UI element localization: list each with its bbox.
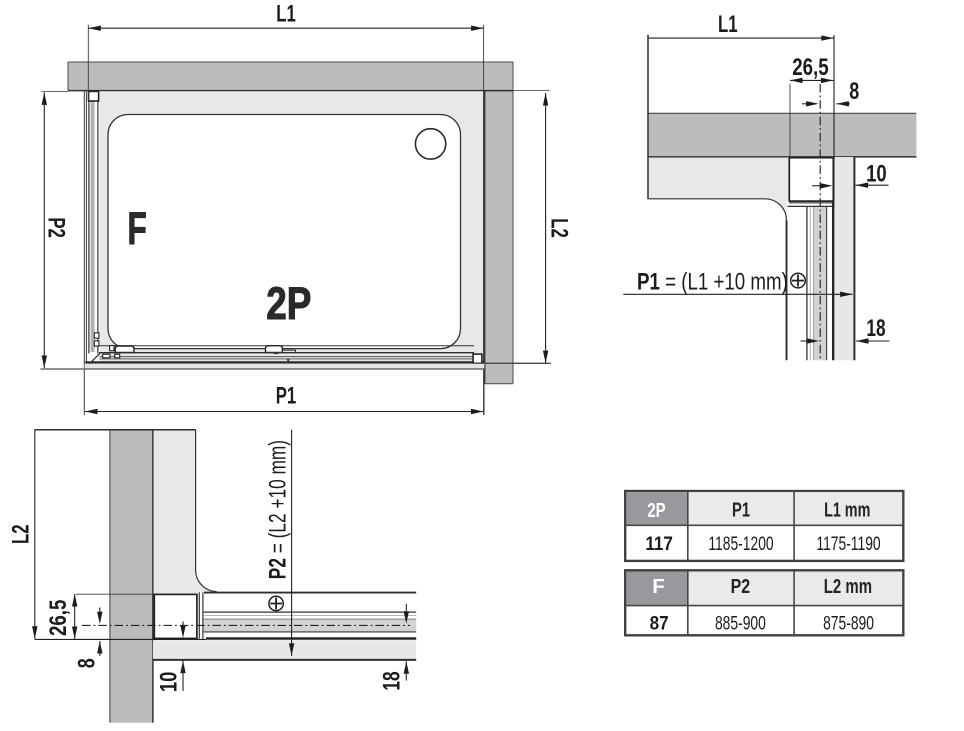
svg-text:1175-1190: 1175-1190	[816, 533, 880, 555]
svg-text:L1 mm: L1 mm	[824, 498, 870, 521]
svg-text:L2 mm: L2 mm	[824, 575, 872, 598]
svg-text:L2: L2	[546, 218, 573, 238]
svg-text:10: 10	[866, 160, 887, 187]
svg-text:18: 18	[379, 671, 405, 690]
svg-text:1185-1200: 1185-1200	[708, 533, 773, 555]
svg-text:L1: L1	[718, 11, 738, 38]
svg-text:26,5: 26,5	[45, 600, 72, 636]
svg-text:P1 = (L1 +10 mm): P1 = (L1 +10 mm)	[637, 268, 788, 295]
svg-text:P1: P1	[276, 383, 297, 410]
svg-text:L1: L1	[276, 1, 296, 28]
svg-text:F: F	[652, 575, 665, 598]
svg-text:87: 87	[650, 612, 669, 633]
svg-text:875-890: 875-890	[823, 612, 874, 634]
svg-text:8: 8	[849, 78, 859, 104]
svg-text:P2 = (L2 +10 mm): P2 = (L2 +10 mm)	[265, 440, 291, 579]
svg-text:L2: L2	[7, 524, 34, 544]
svg-text:P2: P2	[43, 217, 70, 238]
svg-text:885-900: 885-900	[715, 612, 766, 634]
svg-text:2P: 2P	[647, 499, 665, 522]
svg-text:8: 8	[74, 658, 100, 668]
svg-text:P1: P1	[732, 498, 750, 521]
svg-text:P2: P2	[731, 574, 751, 597]
svg-text:2P: 2P	[266, 279, 311, 329]
svg-text:117: 117	[645, 533, 673, 554]
svg-text:10: 10	[155, 672, 182, 693]
svg-text:18: 18	[866, 315, 885, 341]
svg-text:F: F	[127, 205, 146, 255]
svg-text:26,5: 26,5	[792, 54, 828, 81]
